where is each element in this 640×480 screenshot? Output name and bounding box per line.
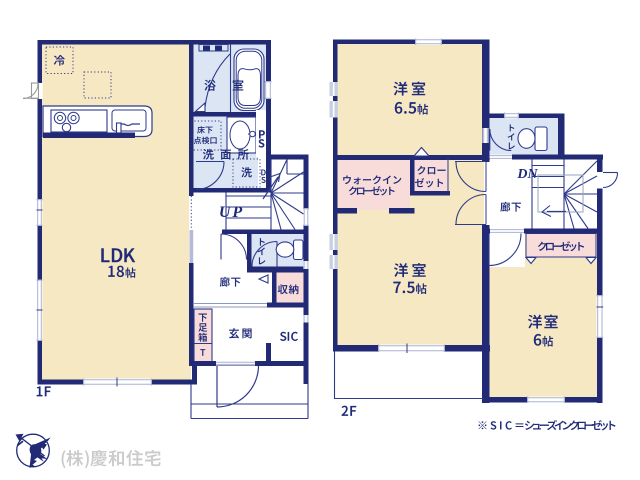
svg-text:DN: DN: [516, 167, 538, 182]
svg-text:UP: UP: [219, 204, 244, 221]
